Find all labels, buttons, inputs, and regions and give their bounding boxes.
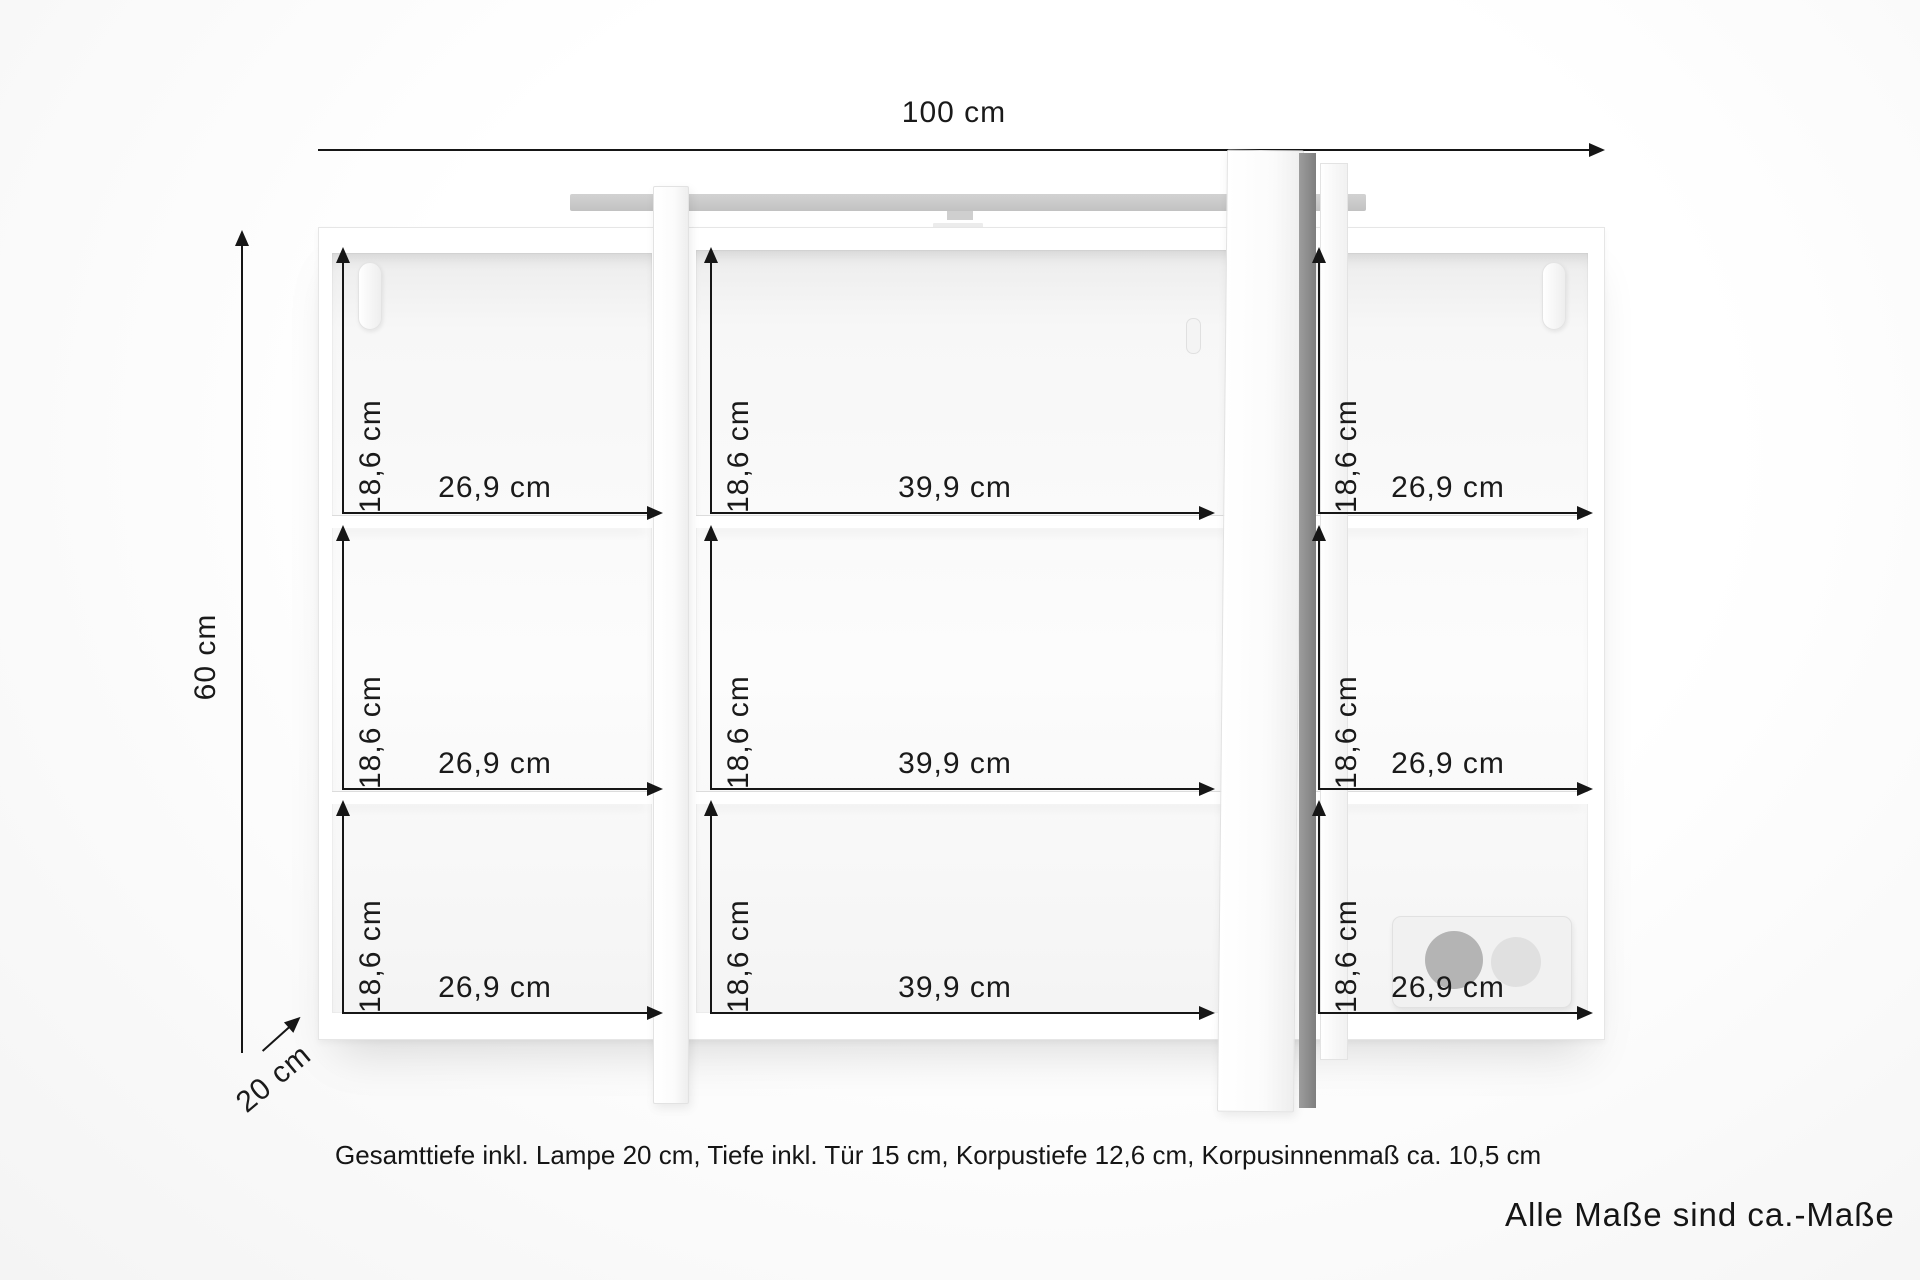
width-dimension-arrow	[342, 512, 648, 514]
compartment-width-label: 26,9 cm	[1318, 971, 1578, 1005]
compartment-width-label: 26,9 cm	[1318, 747, 1578, 781]
width-dimension-arrow	[1318, 788, 1578, 790]
width-dimension-arrow	[342, 1012, 648, 1014]
width-dimension-arrow	[710, 512, 1200, 514]
light-fixture-mount	[947, 211, 973, 220]
width-dimension-arrow	[710, 1012, 1200, 1014]
compartment-row1-col2: 18,6 cm 39,9 cm	[710, 262, 1200, 513]
width-dimension-arrow	[1318, 1012, 1578, 1014]
overall-depth-label: 20 cm	[217, 1027, 331, 1130]
compartment-row2-col1: 18,6 cm 26,9 cm	[342, 540, 648, 789]
diagram-canvas: 100 cm 60 cm 20 cm 18,6 cm 26,9 c	[0, 0, 1920, 1280]
shelf	[696, 791, 1242, 804]
compartment-width-label: 26,9 cm	[342, 471, 648, 505]
open-door-left	[653, 186, 689, 1104]
width-dimension-arrow	[710, 788, 1200, 790]
overall-width-label: 100 cm	[318, 96, 1590, 130]
compartment-row2-col2: 18,6 cm 39,9 cm	[710, 540, 1200, 789]
width-dimension-arrow	[1318, 512, 1578, 514]
open-door-right	[1217, 150, 1304, 1113]
compartment-width-label: 39,9 cm	[710, 471, 1200, 505]
compartment-width-label: 26,9 cm	[1318, 471, 1578, 505]
shelf	[332, 515, 652, 528]
shelf	[1310, 791, 1588, 804]
shelf	[1310, 515, 1588, 528]
disclaimer: Alle Maße sind ca.-Maße	[1505, 1196, 1895, 1234]
compartment-row3-col3: 18,6 cm 26,9 cm	[1318, 815, 1578, 1013]
shelf	[696, 515, 1242, 528]
overall-width-arrow	[318, 149, 1590, 151]
shelf	[332, 791, 652, 804]
compartment-width-label: 26,9 cm	[342, 747, 648, 781]
compartment-width-label: 39,9 cm	[710, 747, 1200, 781]
overall-height-label: 60 cm	[189, 597, 223, 717]
compartment-row1-col1: 18,6 cm 26,9 cm	[342, 262, 648, 513]
compartment-width-label: 26,9 cm	[342, 971, 648, 1005]
overall-height-arrow	[241, 245, 243, 1053]
width-dimension-arrow	[342, 788, 648, 790]
compartment-row3-col2: 18,6 cm 39,9 cm	[710, 815, 1200, 1013]
open-door-right-edge	[1299, 153, 1316, 1108]
compartment-row2-col3: 18,6 cm 26,9 cm	[1318, 540, 1578, 789]
depth-footnote: Gesamttiefe inkl. Lampe 20 cm, Tiefe ink…	[335, 1140, 1541, 1171]
compartment-row1-col3: 18,6 cm 26,9 cm	[1318, 262, 1578, 513]
compartment-row3-col1: 18,6 cm 26,9 cm	[342, 815, 648, 1013]
compartment-width-label: 39,9 cm	[710, 971, 1200, 1005]
